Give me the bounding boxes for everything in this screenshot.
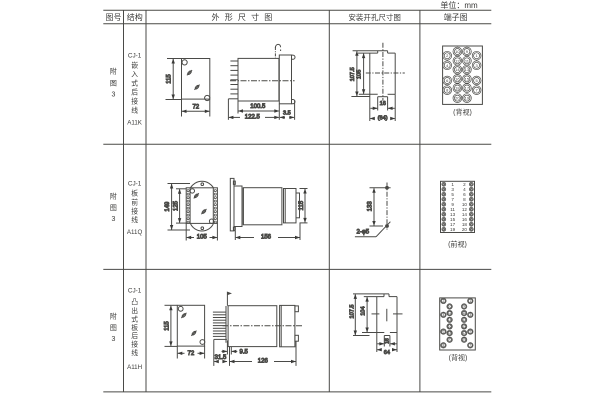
svg-text:11: 11 (462, 311, 466, 315)
svg-text:107.5: 107.5 (350, 67, 356, 81)
svg-text:线: 线 (131, 348, 138, 357)
svg-text:(前视): (前视) (448, 240, 467, 249)
svg-text:4: 4 (443, 313, 445, 317)
svg-text:31.5: 31.5 (215, 355, 227, 361)
svg-text:图号: 图号 (106, 13, 122, 22)
svg-text:接: 接 (131, 206, 138, 215)
svg-text:12: 12 (455, 58, 460, 63)
svg-text:图: 图 (110, 80, 117, 88)
svg-text:20: 20 (448, 338, 452, 342)
svg-text:7: 7 (475, 88, 478, 93)
svg-text:16: 16 (384, 338, 390, 344)
svg-text:16: 16 (448, 324, 452, 328)
svg-text:72: 72 (188, 351, 195, 357)
svg-text:17: 17 (462, 331, 466, 335)
svg-text:107.5: 107.5 (350, 305, 356, 319)
svg-text:3.5: 3.5 (283, 111, 291, 117)
svg-text:前: 前 (131, 197, 138, 206)
svg-text:附: 附 (110, 312, 117, 321)
svg-text:2-φ5: 2-φ5 (357, 229, 370, 235)
svg-text:3: 3 (475, 63, 478, 68)
svg-text:12: 12 (448, 311, 452, 315)
svg-text:3: 3 (469, 313, 471, 317)
svg-text:8: 8 (446, 88, 449, 93)
svg-text:A11K: A11K (127, 120, 143, 127)
svg-text:19: 19 (462, 338, 466, 342)
svg-text:线: 线 (131, 215, 138, 224)
svg-text:安装开孔尺寸图: 安装开孔尺寸图 (348, 12, 401, 22)
svg-text:接: 接 (131, 97, 138, 106)
svg-text:2: 2 (443, 299, 445, 303)
svg-text:14: 14 (448, 318, 452, 322)
svg-text:7: 7 (469, 343, 471, 347)
svg-text:结构: 结构 (127, 12, 143, 22)
svg-text:3: 3 (111, 92, 115, 99)
svg-text:15: 15 (465, 76, 470, 81)
svg-text:13: 13 (465, 67, 470, 72)
svg-text:式: 式 (131, 314, 138, 323)
svg-text:端子图: 端子图 (444, 12, 468, 22)
svg-text:2: 2 (446, 53, 449, 58)
svg-text:18: 18 (455, 86, 460, 91)
svg-text:18: 18 (448, 331, 452, 335)
svg-text:20: 20 (462, 227, 468, 232)
svg-text:嵌: 嵌 (131, 62, 138, 70)
svg-text:单位：mm: 单位：mm (440, 0, 478, 10)
svg-text:CJ-1: CJ-1 (128, 53, 142, 60)
svg-text:板: 板 (131, 323, 138, 332)
svg-text:凸: 凸 (131, 298, 138, 306)
svg-text:图: 图 (110, 324, 117, 332)
svg-text:1: 1 (469, 299, 471, 303)
svg-text:接: 接 (131, 340, 138, 349)
svg-text:附: 附 (110, 67, 117, 76)
svg-text:20: 20 (455, 96, 460, 101)
svg-text:105: 105 (356, 70, 362, 79)
svg-text:CJ-1: CJ-1 (128, 181, 142, 188)
svg-text:17: 17 (465, 86, 470, 91)
svg-text:附: 附 (110, 192, 117, 201)
svg-text:图: 图 (110, 204, 117, 212)
svg-text:126: 126 (258, 359, 269, 365)
svg-text:115: 115 (299, 200, 305, 210)
svg-text:19: 19 (450, 227, 456, 232)
svg-text:122.5: 122.5 (245, 115, 261, 121)
svg-text:4: 4 (446, 63, 449, 68)
svg-text:板: 板 (131, 189, 138, 198)
svg-text:115: 115 (166, 74, 172, 84)
svg-text:10: 10 (448, 305, 452, 309)
svg-text:125: 125 (173, 200, 179, 211)
svg-text:6: 6 (443, 330, 445, 334)
svg-text:3: 3 (111, 216, 115, 223)
svg-text:式: 式 (131, 79, 138, 88)
svg-text:CJ-1: CJ-1 (128, 288, 142, 295)
svg-text:16: 16 (380, 101, 386, 107)
svg-text:19: 19 (465, 96, 470, 101)
svg-text:104: 104 (361, 306, 367, 315)
svg-text:入: 入 (131, 71, 138, 79)
svg-text:9: 9 (466, 49, 469, 54)
svg-text:外形尺寸图: 外形尺寸图 (212, 12, 278, 22)
svg-text:9: 9 (463, 305, 465, 309)
svg-text:15: 15 (462, 324, 466, 328)
svg-text:A11Q: A11Q (127, 229, 143, 236)
svg-text:72: 72 (192, 104, 199, 110)
svg-text:6: 6 (446, 78, 449, 83)
svg-text:156: 156 (261, 235, 272, 241)
svg-text:133: 133 (368, 201, 374, 212)
svg-text:A11H: A11H (127, 364, 142, 371)
svg-text:13: 13 (462, 318, 466, 322)
svg-text:16: 16 (455, 76, 460, 81)
svg-text:1: 1 (475, 53, 478, 58)
svg-text:3: 3 (111, 336, 115, 343)
svg-text:5: 5 (469, 330, 471, 334)
svg-text:64: 64 (384, 350, 390, 356)
svg-text:115: 115 (165, 321, 171, 331)
svg-text:后: 后 (131, 88, 138, 97)
svg-text:(背视): (背视) (449, 353, 468, 362)
svg-text:5: 5 (475, 78, 478, 83)
svg-text:14: 14 (455, 67, 460, 72)
svg-text:后: 后 (131, 331, 138, 340)
svg-text:线: 线 (131, 106, 138, 115)
svg-text:出: 出 (131, 306, 138, 315)
svg-text:105: 105 (197, 235, 208, 241)
svg-text:8: 8 (443, 343, 445, 347)
svg-text:100.5: 100.5 (250, 104, 266, 110)
svg-text:10: 10 (455, 49, 460, 54)
svg-text:(64): (64) (378, 116, 388, 122)
svg-text:149: 149 (165, 201, 171, 212)
svg-text:(背视): (背视) (453, 108, 472, 117)
svg-text:9.5: 9.5 (240, 349, 249, 355)
